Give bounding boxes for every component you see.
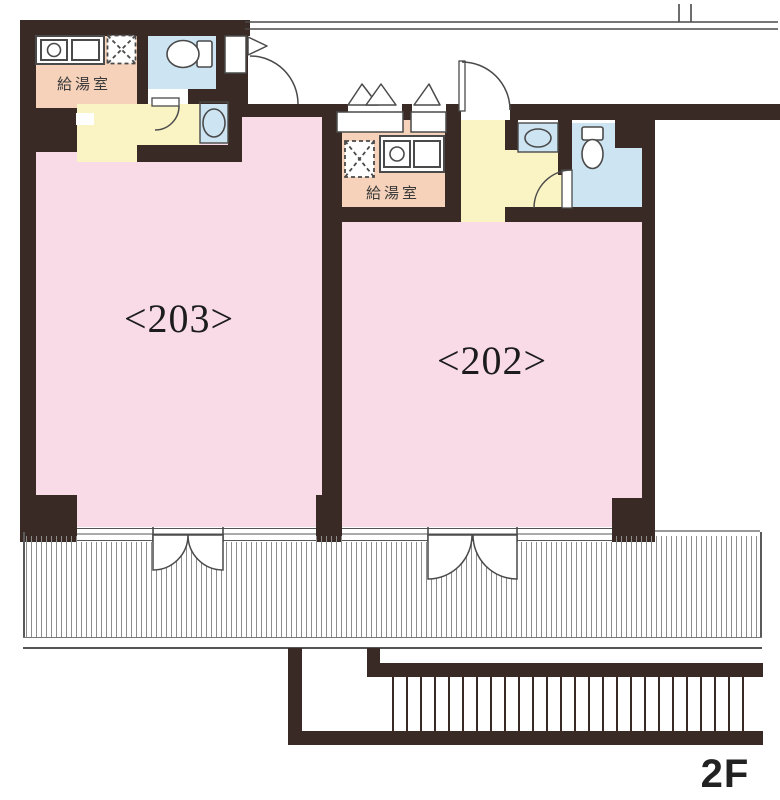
- toilet-icon: [582, 127, 603, 169]
- washbasin-icon: [525, 129, 551, 147]
- hatched-box-icon: [108, 36, 136, 64]
- entrance-door-203: [225, 36, 298, 104]
- hatched-box-icon: [345, 141, 374, 177]
- fixtures-overlay: [0, 0, 780, 800]
- room-number-203: <203>: [79, 294, 279, 342]
- wall-niche: [76, 113, 94, 125]
- window-202-group: [337, 84, 510, 132]
- toilet-icon: [167, 41, 212, 68]
- kitchen-counter-icon: [380, 136, 444, 172]
- entrance-door-202: [459, 61, 510, 111]
- corridor-railing-lines: [245, 4, 778, 29]
- kitchenette-label-203: 給湯室: [34, 73, 134, 93]
- door-stop-triangle-icon: [248, 37, 267, 55]
- door-arc-icon: [462, 62, 510, 110]
- door-arc-icon: [155, 106, 179, 130]
- floor-label: 2F: [685, 753, 765, 795]
- door-arc-icon: [250, 56, 298, 104]
- kitchenette-label-202: 給湯室: [343, 182, 443, 202]
- french-door-arc-203: [153, 535, 223, 570]
- floor-plan: 給湯室 給湯室 <203> <202> 2F: [0, 0, 780, 800]
- washbasin-icon: [203, 109, 225, 137]
- interior-door-203: [152, 98, 179, 130]
- kitchen-counter-icon: [36, 36, 104, 64]
- toilet-door-202: [534, 170, 572, 208]
- room-number-202: <202>: [392, 336, 592, 384]
- window-triangle-icon: [348, 84, 440, 105]
